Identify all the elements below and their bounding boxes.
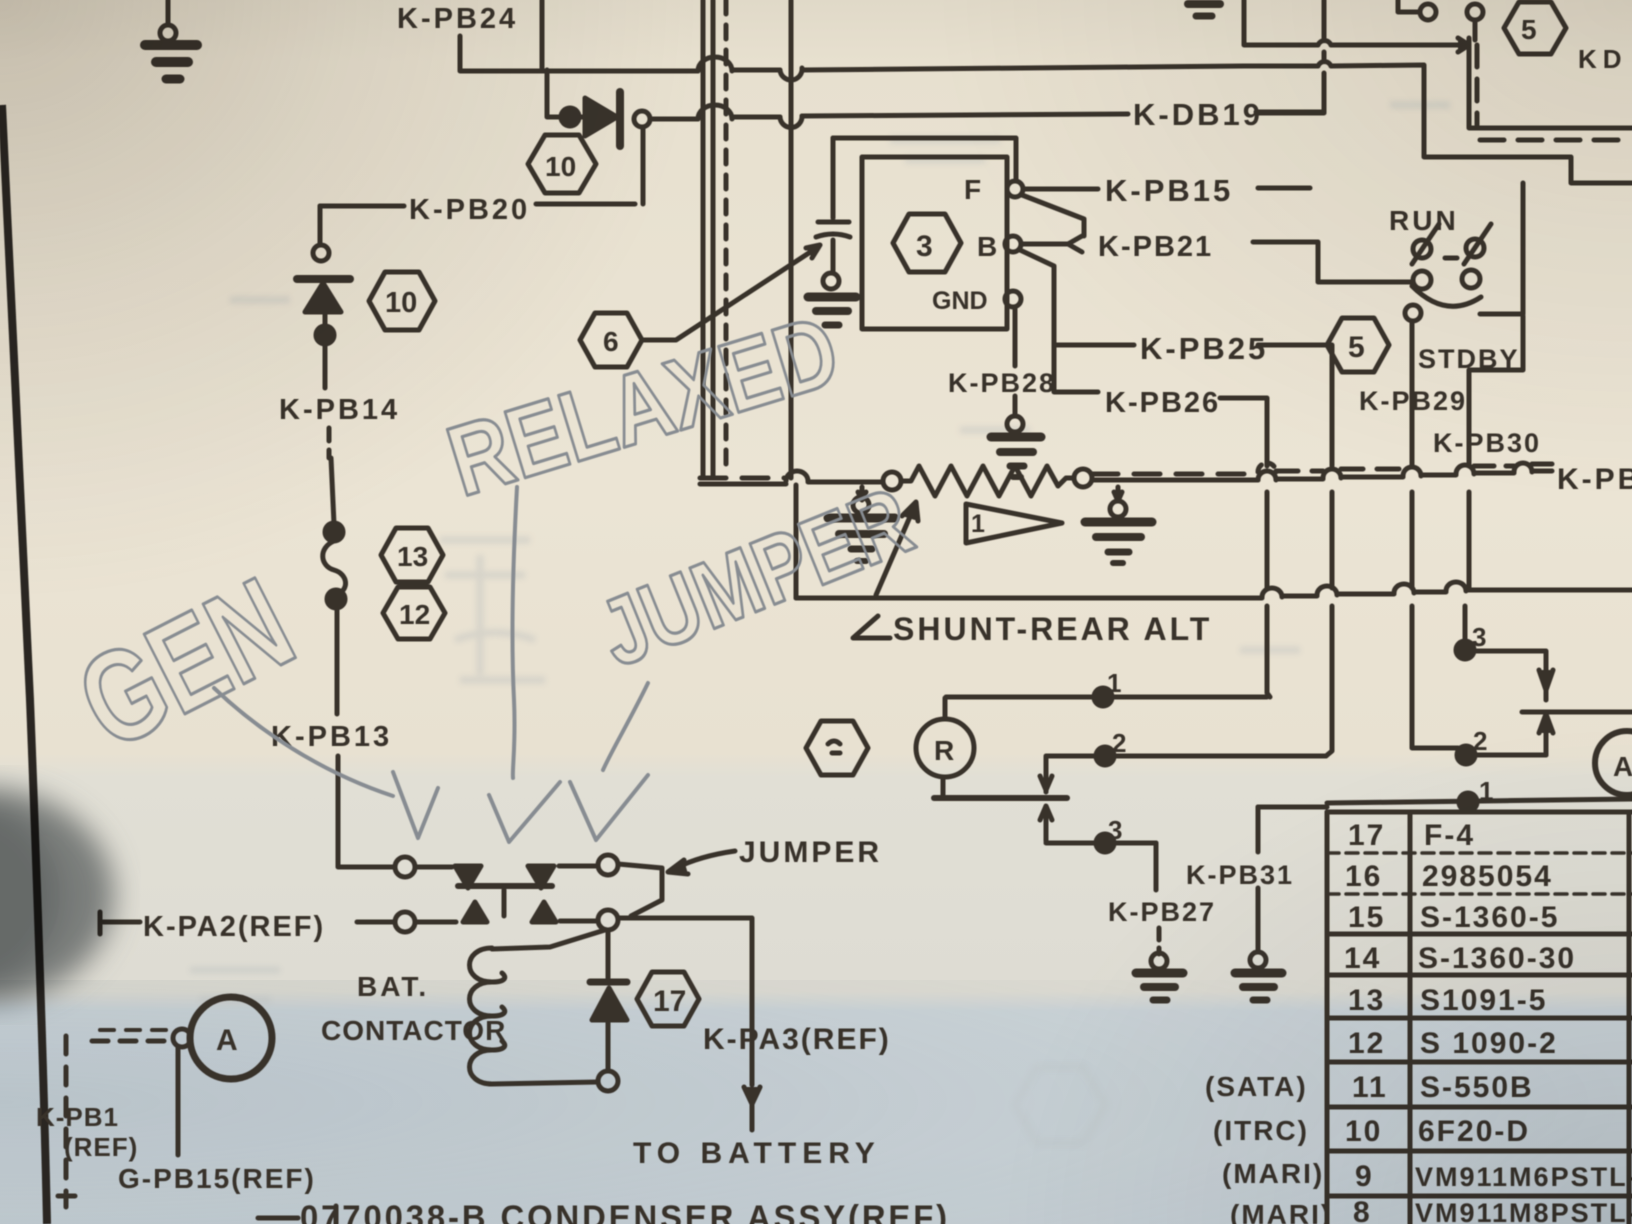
svg-text:K-PA3(REF): K-PA3(REF) (703, 1023, 891, 1056)
svg-text:R: R (934, 735, 954, 766)
svg-text:1: 1 (971, 510, 985, 538)
svg-text:3: 3 (916, 230, 933, 263)
svg-text:(REF): (REF) (64, 1132, 138, 1162)
svg-text:0770038-B CONDENSER ASSY(REF): 0770038-B CONDENSER ASSY(REF) (300, 1199, 950, 1224)
svg-text:12: 12 (399, 599, 430, 630)
svg-text:JUMPER: JUMPER (739, 836, 882, 869)
svg-text:CONTACTOR: CONTACTOR (321, 1015, 506, 1046)
svg-text:17: 17 (653, 985, 686, 1018)
svg-text:BAT.: BAT. (357, 971, 429, 1002)
svg-text:G-PB15(REF): G-PB15(REF) (118, 1163, 316, 1194)
svg-text:K-PB1: K-PB1 (36, 1102, 119, 1132)
svg-text:1: 1 (1107, 668, 1121, 698)
svg-text:SHUNT-REAR ALT: SHUNT-REAR ALT (893, 611, 1212, 647)
svg-text:A: A (216, 1024, 238, 1057)
svg-text:TO BATTERY: TO BATTERY (633, 1137, 881, 1170)
svg-text:K-PA2(REF): K-PA2(REF) (143, 911, 325, 943)
